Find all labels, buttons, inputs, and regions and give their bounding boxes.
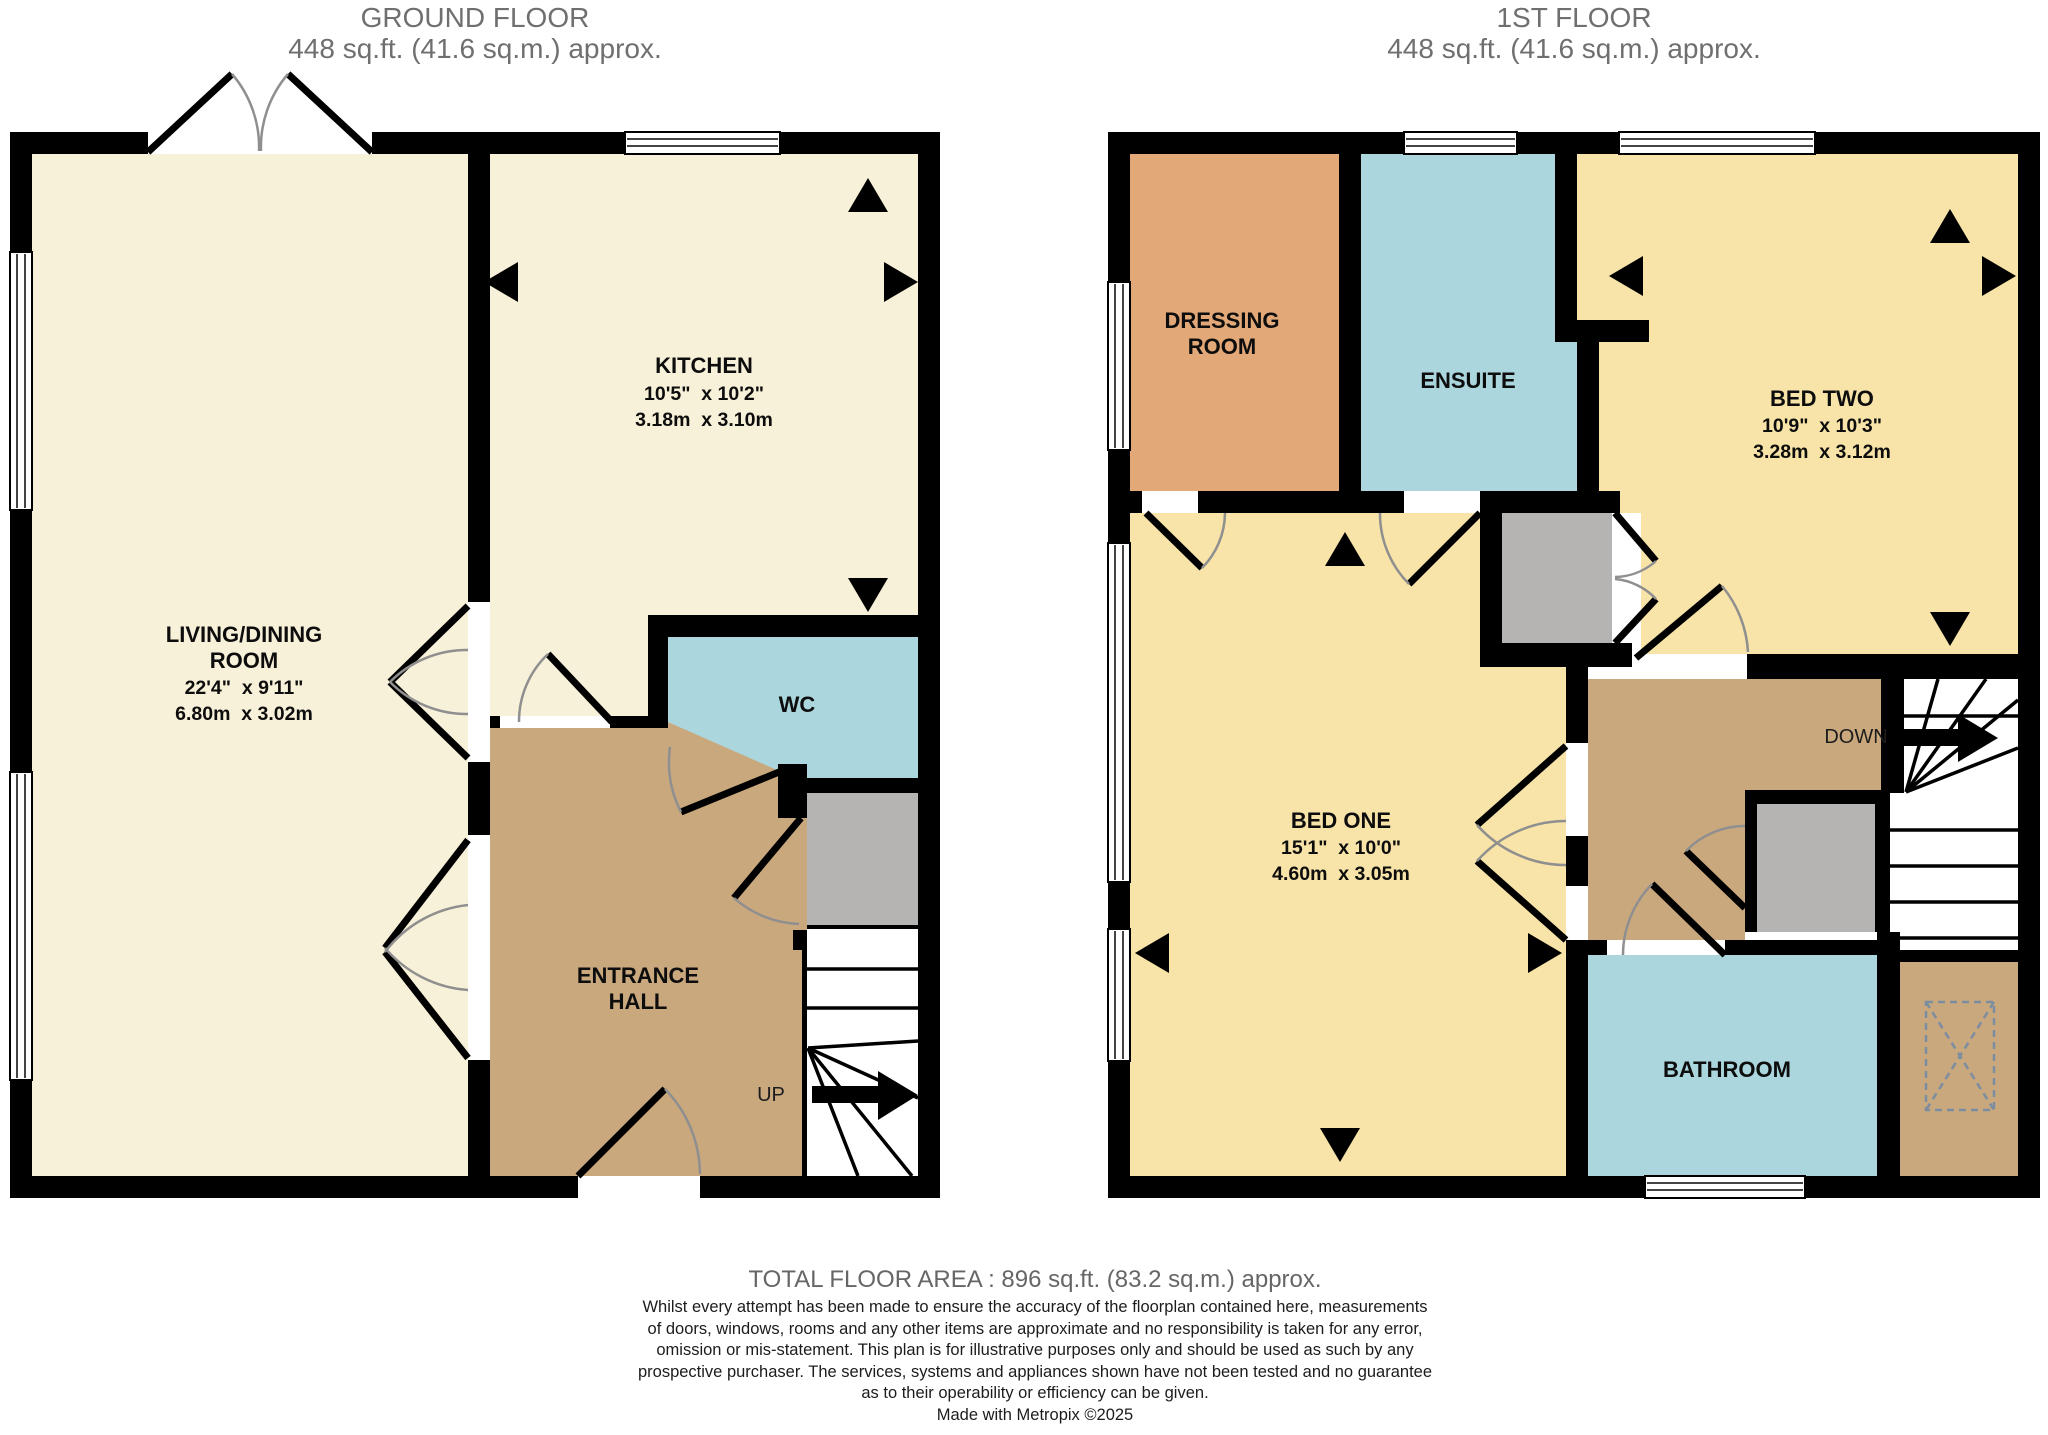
floorplan-page: LIVING/DINING ROOM 22'4" x 9'11" 6.80m x… [0,0,2048,1430]
window-living-left-upper [10,252,32,510]
understairs-cupboard [807,793,918,927]
footer-disclaimer-line: prospective purchaser. The services, sys… [638,1363,1432,1381]
ground-floor-plan: LIVING/DINING ROOM 22'4" x 9'11" 6.80m x… [10,74,940,1198]
window-bed-two-top [1619,132,1815,154]
footer-disclaimer-line: of doors, windows, rooms and any other i… [648,1320,1423,1338]
down-arrow-shaft [1902,729,1958,746]
title-first-floor-area: 448 sq.ft. (41.6 sq.m.) approx. [1387,33,1761,64]
label-bed-two-metric: 3.28m x 3.12m [1753,441,1891,463]
label-bathroom: BATHROOM [1663,1057,1791,1082]
cupboard-landing [1757,804,1875,932]
label-kitchen-metric: 3.18m x 3.10m [635,409,773,431]
airing-cupboard-area [1900,962,2018,1176]
label-living-metric: 6.80m x 3.02m [175,703,313,725]
label-bed-one-name: BED ONE [1291,808,1391,833]
footer-disclaimer-line: omission or mis-statement. This plan is … [656,1341,1414,1359]
label-bed-one-metric: 4.60m x 3.05m [1272,863,1410,885]
window-bathroom-bottom [1645,1176,1805,1198]
stairs-up [807,969,918,1176]
window-bed-one-left-upper [1108,543,1130,882]
title-ground-floor-area: 448 sq.ft. (41.6 sq.m.) approx. [288,33,662,64]
footer-disclaimer-line: as to their operability or efficiency ca… [861,1384,1208,1402]
label-dressing-line2: ROOM [1188,334,1256,359]
stairs-down [1890,679,2018,938]
footer-credit: Made with Metropix ©2025 [937,1406,1134,1424]
up-arrow-head [878,1071,918,1120]
label-living-imperial: 22'4" x 9'11" [185,677,304,699]
label-kitchen-name: KITCHEN [655,353,753,378]
label-kitchen-imperial: 10'5" x 10'2" [644,383,764,405]
room-ensuite [1361,154,1577,491]
window-kitchen-top [625,132,780,154]
label-bed-one-imperial: 15'1" x 10'0" [1281,837,1401,859]
label-up: UP [757,1084,785,1106]
label-hall-line2: HALL [609,989,668,1014]
label-hall-line1: ENTRANCE [577,963,699,988]
first-floor-plan: DRESSING ROOM ENSUITE BED TWO 10'9" x 10… [1108,132,2040,1198]
footer-total-area: TOTAL FLOOR AREA : 896 sq.ft. (83.2 sq.m… [748,1266,1321,1293]
footer-disclaimer-line: Whilst every attempt has been made to en… [642,1298,1427,1316]
title-first-floor: 1ST FLOOR [1496,2,1651,33]
window-dressing-left [1108,282,1130,450]
label-bed-two-name: BED TWO [1770,386,1874,411]
window-living-left-lower [10,772,32,1080]
label-dressing-line1: DRESSING [1165,308,1280,333]
french-doors [148,74,372,152]
window-bed-one-left-lower [1108,929,1130,1061]
window-ensuite-top [1404,132,1517,154]
floorplan-svg: LIVING/DINING ROOM 22'4" x 9'11" 6.80m x… [0,0,2048,1430]
title-ground-floor: GROUND FLOOR [361,2,590,33]
cupboard-bed-two [1502,505,1612,643]
label-wc: WC [779,692,816,717]
up-arrow-shaft [812,1086,878,1103]
label-living-name1: LIVING/DINING [166,622,322,647]
label-living-name2: ROOM [210,648,278,673]
label-down: DOWN [1824,726,1887,748]
label-ensuite: ENSUITE [1420,368,1515,393]
label-bed-two-imperial: 10'9" x 10'3" [1762,415,1882,437]
